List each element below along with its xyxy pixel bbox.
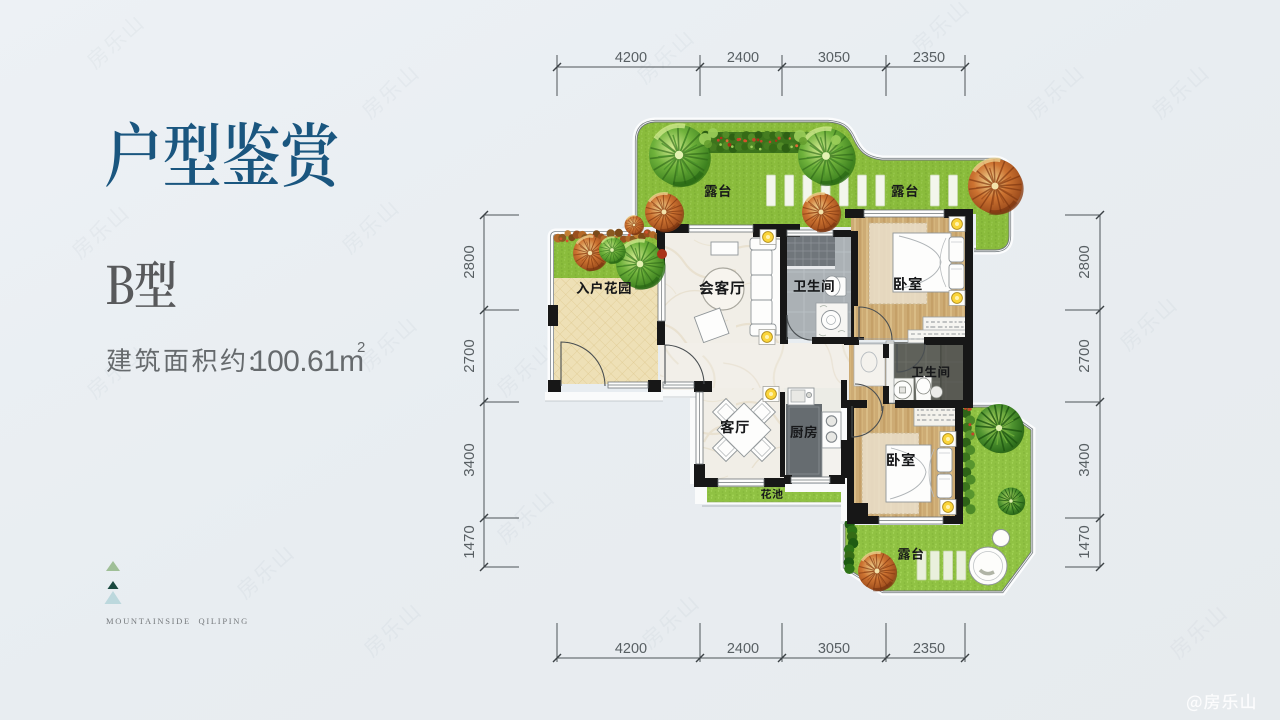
svg-text:1470: 1470	[461, 525, 478, 558]
svg-text:2700: 2700	[461, 339, 478, 372]
svg-text:4200: 4200	[615, 50, 647, 66]
svg-text:2350: 2350	[913, 641, 945, 657]
svg-text:1470: 1470	[1076, 525, 1093, 558]
svg-text:2: 2	[357, 339, 365, 356]
svg-text:4200: 4200	[615, 641, 647, 657]
svg-text:2350: 2350	[913, 50, 945, 66]
svg-text:2400: 2400	[727, 50, 759, 66]
svg-text:2800: 2800	[461, 245, 478, 278]
svg-text:100.61m: 100.61m	[251, 345, 364, 378]
svg-text:2800: 2800	[1076, 245, 1093, 278]
svg-text:3400: 3400	[1076, 443, 1093, 476]
svg-text:3050: 3050	[818, 641, 850, 657]
svg-text:2700: 2700	[1076, 339, 1093, 372]
svg-text:3400: 3400	[461, 443, 478, 476]
svg-text:2400: 2400	[727, 641, 759, 657]
svg-text:3050: 3050	[818, 50, 850, 66]
svg-text:MOUNTAINSIDE QILIPING: MOUNTAINSIDE QILIPING	[106, 616, 249, 626]
